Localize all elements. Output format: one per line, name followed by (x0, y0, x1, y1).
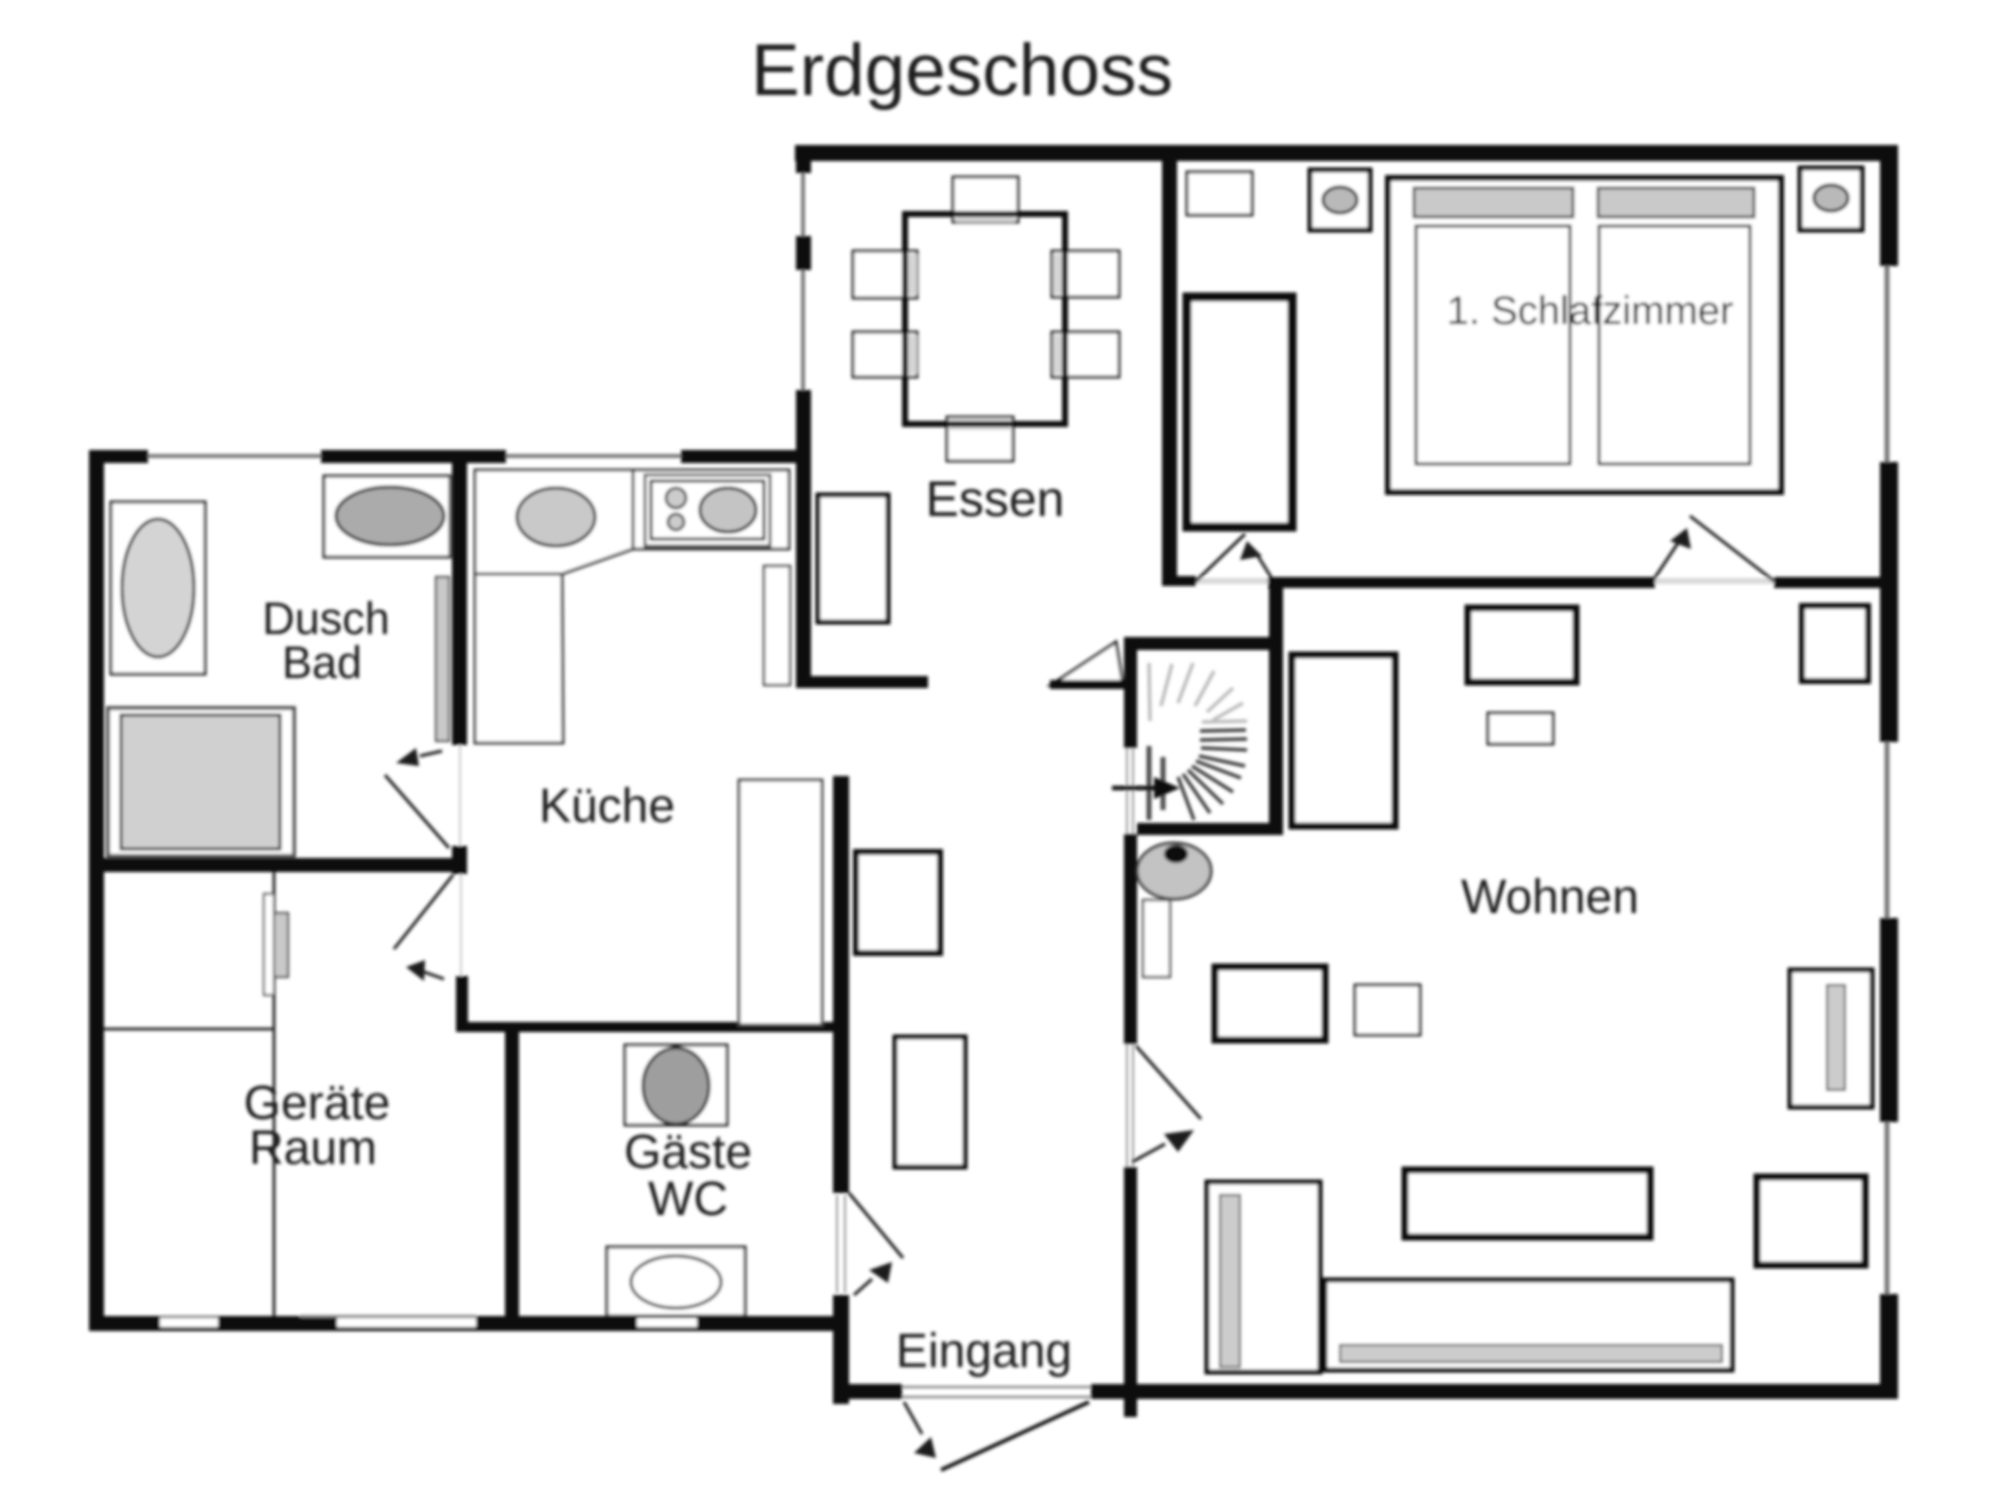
svg-text:Erdgeschoss: Erdgeschoss (751, 30, 1173, 111)
svg-text:Gäste: Gäste (624, 1126, 752, 1179)
svg-text:Bad: Bad (282, 637, 362, 688)
svg-text:Eingang: Eingang (896, 1325, 1072, 1378)
svg-text:Wohnen: Wohnen (1461, 871, 1639, 924)
svg-text:WC: WC (648, 1173, 728, 1226)
svg-text:Küche: Küche (539, 780, 675, 833)
svg-text:Raum: Raum (249, 1122, 377, 1175)
svg-text:1. Schlafzimmer: 1. Schlafzimmer (1447, 289, 1734, 333)
svg-text:Essen: Essen (926, 471, 1065, 527)
